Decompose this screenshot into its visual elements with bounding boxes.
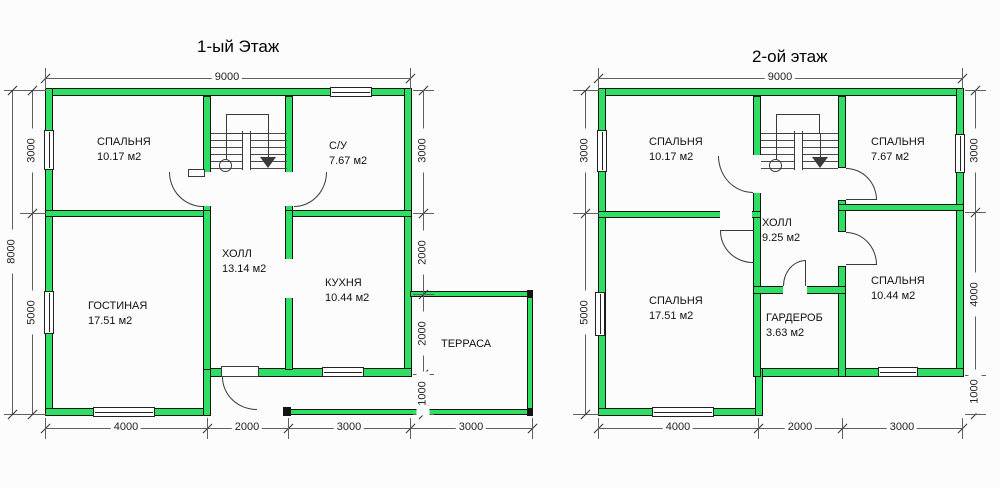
dimension-tick (965, 212, 986, 213)
dimension-label: 3000 (887, 421, 917, 434)
dimension-tick (598, 68, 599, 89)
dimension-tick (413, 90, 434, 91)
dimension-tick (575, 213, 596, 214)
room-label-bedroom1: СПАЛЬНЯ 10.17 м2 (649, 135, 703, 165)
dimension-label: 4000 (111, 421, 141, 434)
room-area: 7.67 м2 (871, 150, 925, 165)
room-label-bedroom3: СПАЛЬНЯ 17.51 м2 (649, 294, 703, 324)
dimension-tick (962, 418, 963, 439)
f2-door-leaf-bedroom2 (846, 199, 877, 200)
room-area: 17.51 м2 (88, 314, 147, 329)
f2-door-arc-bedroom4 (846, 232, 877, 265)
dimension-label: 3000 (26, 129, 39, 173)
terrace-railing-bottom (290, 409, 533, 415)
f1-stairs-start-circle (219, 159, 232, 172)
f1-exterior-wall-step (203, 368, 211, 416)
room-area: 10.44 м2 (871, 289, 925, 304)
dimension-tick (410, 418, 411, 439)
dimension-label: 4000 (969, 273, 982, 317)
dimension-tick (413, 213, 434, 214)
f2-door-opening-closet (783, 286, 807, 294)
room-area: 3.63 м2 (766, 326, 823, 341)
room-label-bedroom4: СПАЛЬНЯ 10.44 м2 (871, 274, 925, 304)
dimension-tick (962, 68, 963, 89)
f2-exterior-wall-right (956, 88, 964, 377)
f1-door-leaf-bedroom (188, 169, 205, 177)
dimension-tick (45, 418, 46, 439)
f2-wall-hall-right-lower (838, 266, 846, 377)
railing-end-cap (527, 290, 533, 298)
dimension-tick (22, 213, 43, 214)
room-area: 7.67 м2 (329, 154, 367, 169)
f2-door-arc-bedroom3 (720, 231, 753, 263)
f1-stairs-path-line (268, 134, 269, 157)
dimension-label: 1000 (417, 372, 430, 416)
f1-door-arc-bath (294, 172, 327, 207)
room-label-closet: ГАРДЕРОБ 3.63 м2 (766, 311, 823, 341)
f1-exterior-wall-right (404, 88, 412, 377)
room-name: СПАЛЬНЯ (97, 135, 151, 150)
f2-stairs-path-line (820, 134, 821, 157)
room-label-terrace: ТЕРРАСА (441, 337, 491, 352)
f2-door-arc-bedroom2 (846, 168, 877, 200)
dimension-label: 1000 (969, 370, 982, 414)
dimension-label: 5000 (579, 291, 592, 335)
dimension-label: 2000 (417, 312, 430, 356)
f1-entrance-door-leaf (221, 366, 259, 377)
room-name: СПАЛЬНЯ (871, 135, 925, 150)
dimension-label: 4000 (663, 421, 693, 434)
dimension-label: 3000 (456, 421, 486, 434)
f1-stairs-direction-arrow (260, 157, 276, 168)
floor-plan-canvas: 1-ый Этаж СПАЛЬНЯ 10.17 м2 С/У 7.67 м (0, 0, 1000, 488)
room-area: 13.14 м2 (222, 262, 266, 277)
room-name: С/У (329, 139, 367, 154)
dimension-label: 2000 (417, 231, 430, 275)
dimension-tick (532, 418, 533, 439)
room-area: 10.17 м2 (649, 150, 703, 165)
f2-window-bedroom4 (878, 367, 918, 377)
f2-door-opening-bedroom1 (753, 155, 761, 193)
dimension-tick (598, 418, 599, 439)
terrace-railing-right (527, 291, 533, 415)
room-name: СПАЛЬНЯ (649, 135, 703, 150)
dimension-tick (288, 418, 289, 439)
dimension-tick (965, 414, 986, 415)
f2-door-leaf-closet (805, 260, 806, 286)
floor1-title: 1-ый Этаж (197, 37, 279, 57)
f2-stairs-path-line (776, 134, 777, 160)
room-name: ГОСТИНАЯ (88, 299, 147, 314)
f2-window-bedroom3 (595, 292, 605, 336)
floor2-title: 2-ой этаж (752, 47, 828, 67)
room-area: 17.51 м2 (649, 309, 703, 324)
f1-window-living-bottom (93, 407, 155, 417)
room-area: 10.17 м2 (97, 150, 151, 165)
dimension-label: 2000 (785, 421, 815, 434)
room-label-bath: С/У 7.67 м2 (329, 139, 367, 169)
room-area: 10.44 м2 (325, 291, 369, 306)
room-name: ТЕРРАСА (441, 337, 491, 352)
room-name: ХОЛЛ (222, 247, 266, 262)
f1-wall-horizontal-left (45, 210, 211, 217)
dimension-label: 3000 (969, 129, 982, 173)
room-name: КУХНЯ (325, 276, 369, 291)
dimension-label: 3000 (334, 421, 364, 434)
dimension-label: 2000 (232, 421, 262, 434)
f1-door-opening-bath (285, 172, 293, 206)
f2-door-arc-closet (783, 260, 806, 286)
room-name: СПАЛЬНЯ (649, 294, 703, 309)
f2-wall-hall-left (753, 96, 761, 377)
dimension-label: 3000 (417, 129, 430, 173)
room-label-kitchen: КУХНЯ 10.44 м2 (325, 276, 369, 306)
room-label-hall2: ХОЛЛ 9.25 м2 (762, 216, 800, 246)
dimension-tick (410, 68, 411, 89)
dimension-label: 8000 (6, 230, 19, 274)
dimension-label: 9000 (765, 71, 795, 84)
f1-door-opening-bedroom (203, 172, 211, 206)
dimension-tick (413, 294, 434, 295)
f2-wall-horizontal-right (838, 204, 964, 211)
dimension-label: 9000 (212, 71, 242, 84)
room-name: ГАРДЕРОБ (766, 311, 823, 326)
f1-door-opening-kitchen (285, 259, 293, 298)
railing-end-cap (283, 407, 291, 416)
room-label-hall: ХОЛЛ 13.14 м2 (222, 247, 266, 277)
room-label-bedroom2: СПАЛЬНЯ 7.67 м2 (871, 135, 925, 165)
railing-end-cap (527, 408, 533, 416)
f2-door-leaf-bedroom4 (846, 264, 877, 265)
f1-door-arc-bedroom (169, 172, 203, 207)
f2-exterior-wall-top (598, 88, 964, 96)
dimension-tick (207, 418, 208, 439)
f1-stairs-path-line (226, 134, 227, 160)
f1-window-bath (330, 87, 372, 97)
f1-stairs-divider (242, 131, 251, 170)
f2-stairs-direction-arrow (812, 157, 828, 168)
f1-window-kitchen (322, 367, 364, 377)
f2-window-bedroom1 (597, 130, 607, 172)
f2-window-bedroom2 (955, 134, 965, 173)
dimension-tick (758, 418, 759, 439)
room-label-living: ГОСТИНАЯ 17.51 м2 (88, 299, 147, 329)
f2-stairs-start-circle (769, 159, 782, 172)
f1-wall-horizontal-right (285, 210, 412, 217)
dimension-tick (965, 90, 986, 91)
dimension-label: 5000 (26, 291, 39, 335)
room-label-bedroom: СПАЛЬНЯ 10.17 м2 (97, 135, 151, 165)
f2-stairs-landing (776, 114, 820, 134)
f2-wall-hall-right-upper (838, 96, 846, 168)
f2-window-bedroom3-bottom (652, 407, 714, 417)
room-name: ХОЛЛ (762, 216, 800, 231)
f2-stairs-divider (794, 131, 803, 170)
f1-window-bedroom (44, 130, 54, 170)
dimension-label: 3000 (579, 129, 592, 173)
f1-stairs-landing (226, 114, 269, 134)
room-area: 9.25 м2 (762, 231, 800, 246)
dimension-tick (842, 418, 843, 439)
dimension-tick (45, 68, 46, 89)
f1-window-living (44, 291, 54, 334)
f2-door-arc-bedroom1 (718, 156, 753, 193)
f1-wall-living-hall (203, 210, 211, 370)
f2-exterior-wall-bottom-right (755, 368, 964, 377)
f2-door-opening-bedroom3 (720, 211, 752, 218)
room-name: СПАЛЬНЯ (871, 274, 925, 289)
f1-entrance-door-arc (222, 377, 257, 410)
